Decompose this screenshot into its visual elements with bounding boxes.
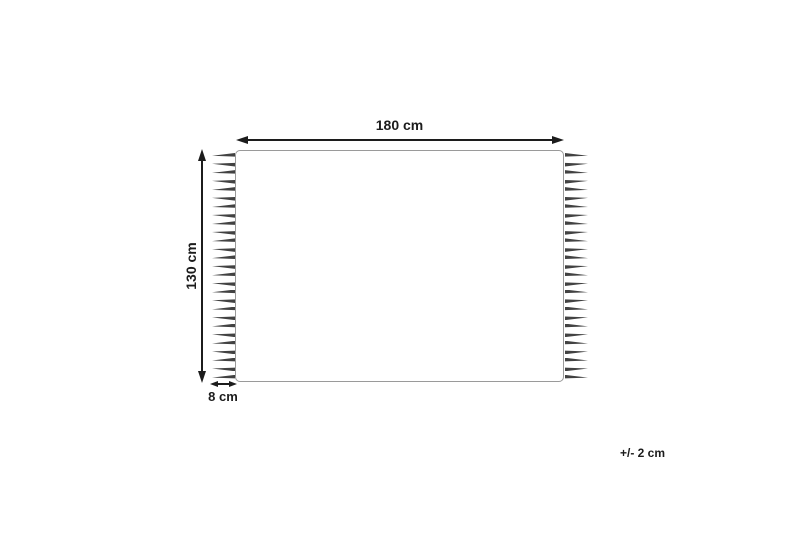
fringe-tassel: [565, 315, 588, 320]
fringe-tassel: [565, 290, 588, 295]
fringe-tassel: [565, 204, 588, 209]
arrowhead-right-icon: [229, 381, 237, 387]
fringe-tassel: [565, 221, 588, 226]
fringe-tassel: [212, 324, 235, 329]
fringe-tassel: [212, 162, 235, 167]
fringe-tassel: [212, 213, 235, 218]
fringe-tassel: [212, 196, 235, 201]
fringe-dimension-arrow: [210, 379, 237, 389]
fringe-tassel: [565, 281, 588, 286]
fringe-tassel: [212, 290, 235, 295]
fringe-tassel: [565, 358, 588, 363]
fringe-tassel: [212, 170, 235, 175]
fringe-tassel: [212, 255, 235, 260]
fringe-tassel: [212, 349, 235, 354]
width-dimension-arrow: [236, 133, 564, 146]
fringe-tassel: [565, 187, 588, 192]
fringe-tassel: [212, 187, 235, 192]
fringe-tassel: [565, 170, 588, 175]
fringe-tassel: [212, 358, 235, 363]
fringe-tassel: [212, 332, 235, 337]
fringe-tassel: [565, 247, 588, 252]
width-dimension-label: 180 cm: [235, 117, 564, 133]
arrowhead-right-icon: [552, 136, 564, 144]
fringe-tassel: [565, 349, 588, 354]
fringe-tassel: [565, 366, 588, 371]
rug-outline: [235, 150, 564, 382]
fringe-tassel: [565, 213, 588, 218]
fringe-tassel: [565, 179, 588, 184]
fringe-tassel: [565, 264, 588, 269]
fringe-tassel: [565, 272, 588, 277]
fringe-tassel: [212, 153, 235, 158]
arrow-shaft: [201, 161, 203, 371]
fringe-tassel: [565, 153, 588, 158]
fringe-tassel: [212, 272, 235, 277]
arrowhead-left-icon: [236, 136, 248, 144]
fringe-right: [565, 153, 588, 380]
fringe-dimension-label: 8 cm: [197, 389, 249, 404]
arrowhead-up-icon: [198, 149, 206, 161]
fringe-tassel: [565, 230, 588, 235]
dimension-diagram: 180 cm 130 cm 8 cm +/- 2 cm: [0, 0, 800, 533]
tolerance-label: +/- 2 cm: [620, 446, 665, 460]
fringe-tassel: [212, 366, 235, 371]
fringe-tassel: [212, 221, 235, 226]
fringe-tassel: [212, 315, 235, 320]
fringe-tassel: [212, 204, 235, 209]
fringe-tassel: [565, 375, 588, 380]
fringe-tassel: [565, 162, 588, 167]
fringe-tassel: [212, 281, 235, 286]
fringe-tassel: [565, 324, 588, 329]
arrow-shaft: [248, 139, 552, 141]
fringe-tassel: [212, 230, 235, 235]
arrow-shaft: [218, 383, 229, 385]
fringe-tassel: [565, 255, 588, 260]
fringe-tassel: [212, 179, 235, 184]
fringe-tassel: [212, 341, 235, 346]
fringe-tassel: [565, 307, 588, 312]
fringe-tassel: [212, 264, 235, 269]
fringe-tassel: [565, 332, 588, 337]
fringe-left: [212, 153, 235, 380]
fringe-tassel: [212, 307, 235, 312]
arrowhead-left-icon: [210, 381, 218, 387]
fringe-tassel: [565, 298, 588, 303]
height-dimension-arrow: [195, 149, 208, 383]
fringe-tassel: [212, 298, 235, 303]
fringe-tassel: [565, 341, 588, 346]
fringe-tassel: [565, 238, 588, 243]
fringe-tassel: [212, 238, 235, 243]
fringe-tassel: [565, 196, 588, 201]
arrowhead-down-icon: [198, 371, 206, 383]
fringe-tassel: [212, 247, 235, 252]
